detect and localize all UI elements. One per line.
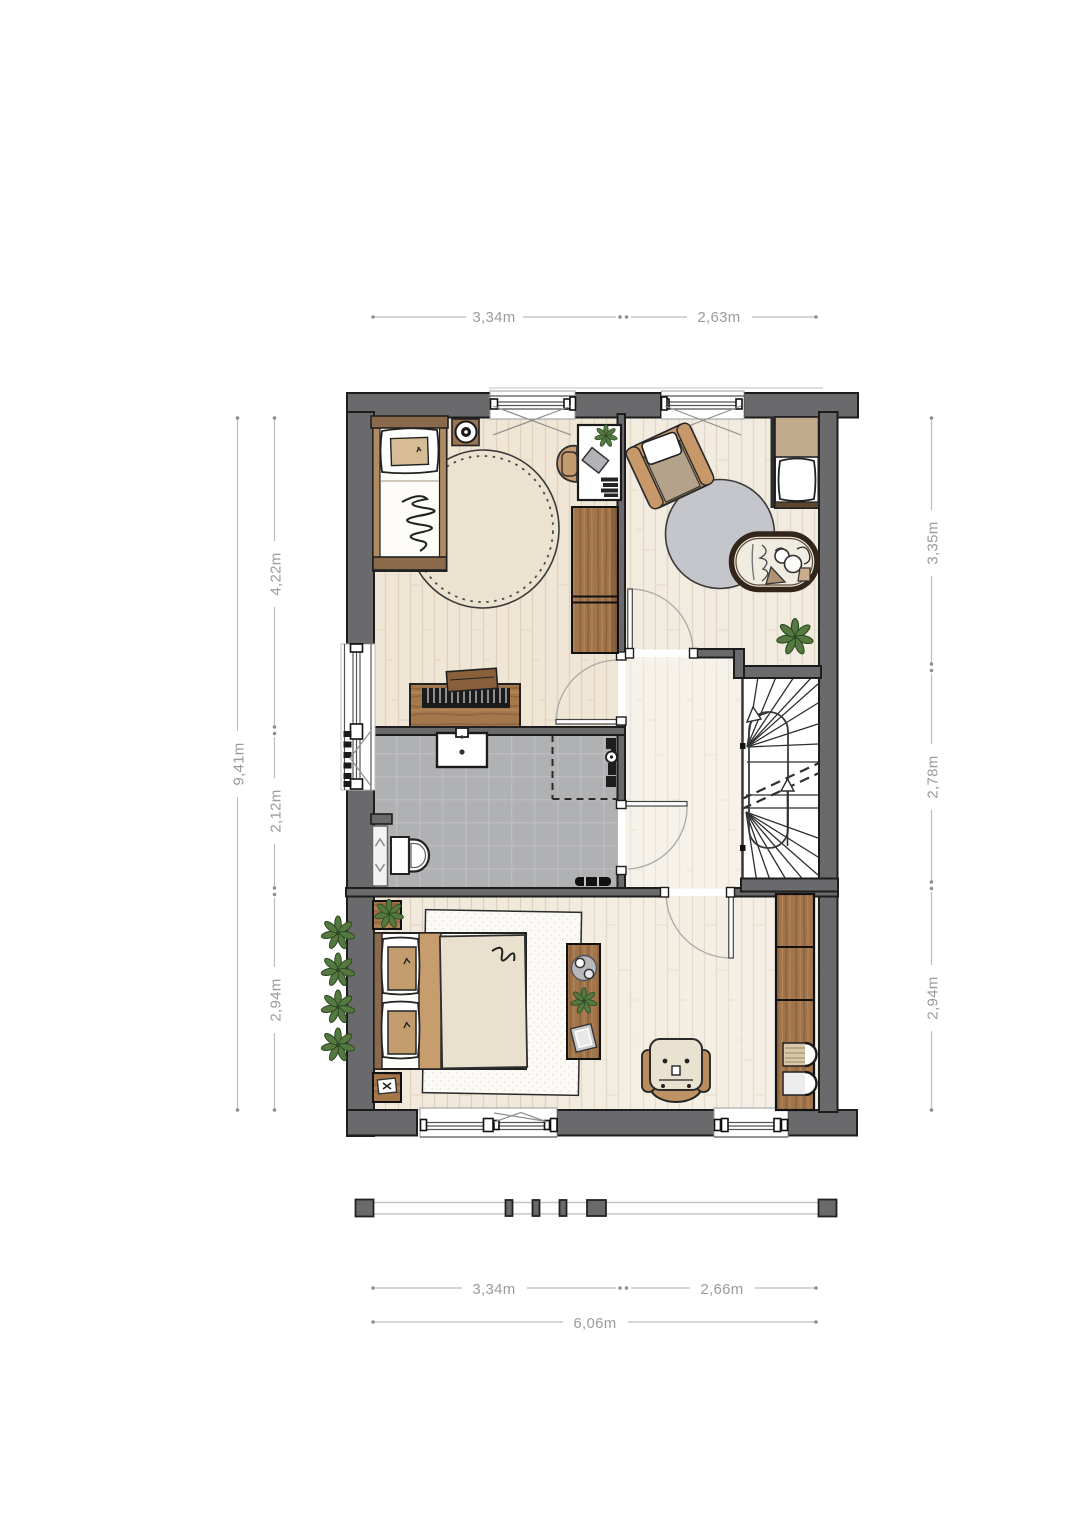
svg-text:2,66m: 2,66m — [700, 1281, 743, 1298]
svg-text:3,34m: 3,34m — [472, 309, 515, 326]
svg-text:2,12m: 2,12m — [268, 789, 285, 832]
svg-text:2,94m: 2,94m — [925, 976, 942, 1019]
svg-text:3,35m: 3,35m — [925, 521, 942, 564]
svg-text:3,34m: 3,34m — [472, 1281, 515, 1298]
svg-text:2,94m: 2,94m — [268, 978, 285, 1021]
svg-text:4,22m: 4,22m — [268, 552, 285, 595]
svg-text:6,06m: 6,06m — [573, 1315, 616, 1332]
svg-text:9,41m: 9,41m — [231, 742, 248, 785]
svg-text:2,63m: 2,63m — [697, 309, 740, 326]
svg-text:2,78m: 2,78m — [925, 755, 942, 798]
